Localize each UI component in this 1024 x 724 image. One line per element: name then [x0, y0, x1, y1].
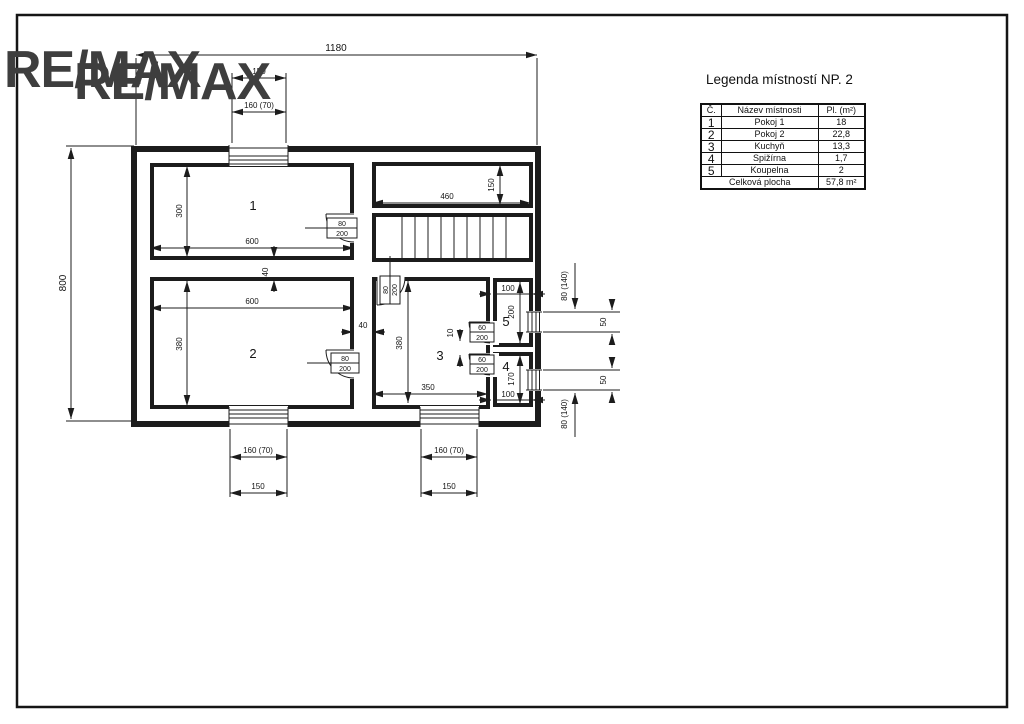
- legend-room-name: Kuchyň: [721, 141, 818, 153]
- dim-side-window-upper-height: 50: [599, 317, 608, 326]
- room5-number: 5: [502, 314, 509, 329]
- dim-overall-height: 800: [58, 274, 69, 291]
- dim-overall-width: 1180: [325, 43, 347, 54]
- dim-room4-width: 100: [501, 390, 515, 399]
- dim-side-window-upper: 80 (140): [560, 271, 569, 301]
- legend-room-name: Pokoj 2: [721, 129, 818, 141]
- dim-kitchen-height: 380: [395, 336, 404, 350]
- legend-room-no: 5: [701, 165, 721, 177]
- door-height-label: 200: [339, 366, 351, 373]
- dim-room1-height: 300: [175, 204, 184, 218]
- door-height-label: 200: [476, 335, 488, 342]
- legend-col-name: Název místnosti: [721, 104, 818, 117]
- window-bottom-left: [229, 406, 288, 429]
- window-right-upper: [525, 311, 543, 333]
- room4-number: 4: [502, 359, 509, 374]
- window-bottom-right: [420, 406, 479, 429]
- legend-row: 4 Spižírna 1,7: [701, 153, 865, 165]
- legend-room-name: Koupelna: [721, 165, 818, 177]
- door-width-label: 80: [338, 221, 346, 228]
- dim-kitchen-width: 350: [421, 383, 435, 392]
- legend-room-no: 3: [701, 141, 721, 153]
- legend-room-no: 4: [701, 153, 721, 165]
- door-width-label: 60: [478, 357, 486, 364]
- room-legend: Legenda místností NP. 2 Č. Název místnos…: [700, 72, 876, 190]
- legend-room-no: 1: [701, 117, 721, 129]
- dim-room5-width: 100: [501, 284, 515, 293]
- legend-row: 1 Pokoj 1 18: [701, 117, 865, 129]
- dim-stair-width: 460: [440, 192, 454, 201]
- legend-row: 2 Pokoj 2 22,8: [701, 129, 865, 141]
- legend-room-no: 2: [701, 129, 721, 141]
- window-right-lower: [525, 369, 543, 391]
- dim-wall-thickness-horizontal: 40: [359, 321, 368, 330]
- room1-number: 1: [249, 198, 256, 213]
- door-width-label: 60: [478, 325, 486, 332]
- floorplan-page: 80 200 80 200 80 200 60 200 60 200 1180 …: [0, 0, 1024, 724]
- legend-room-area: 1,7: [818, 153, 865, 165]
- dim-stair-height: 150: [487, 178, 496, 192]
- legend-total-label: Celková plocha: [701, 177, 818, 190]
- door-height-label: 200: [476, 367, 488, 374]
- legend-room-area: 18: [818, 117, 865, 129]
- dim-room1-width: 600: [245, 237, 259, 246]
- dim-bottom-window-right-clear: 150: [442, 482, 456, 491]
- legend-room-area: 2: [818, 165, 865, 177]
- legend-header-row: Č. Název místnosti Pl. (m²): [701, 104, 865, 117]
- legend-col-number: Č.: [701, 104, 721, 117]
- legend-title: Legenda místností NP. 2: [706, 72, 876, 87]
- legend-room-area: 22,8: [818, 129, 865, 141]
- legend-room-name: Pokoj 1: [721, 117, 818, 129]
- door-width-label: 80: [341, 356, 349, 363]
- legend-room-name: Spižírna: [721, 153, 818, 165]
- dim-door-gap: 10: [446, 328, 455, 337]
- dim-side-window-lower-height: 50: [599, 375, 608, 384]
- legend-total-value: 57,8 m²: [818, 177, 865, 190]
- legend-total-row: Celková plocha 57,8 m²: [701, 177, 865, 190]
- dim-bottom-window-left-clear: 150: [251, 482, 265, 491]
- window-top: [229, 143, 288, 166]
- door-width-label: 80: [383, 286, 390, 294]
- dim-room2-height: 380: [175, 337, 184, 351]
- legend-table: Č. Název místnosti Pl. (m²) 1 Pokoj 1 18…: [700, 103, 866, 190]
- dim-top-window-clear: 150: [252, 67, 266, 76]
- legend-row: 3 Kuchyň 13,3: [701, 141, 865, 153]
- dim-top-window: 160 (70): [244, 101, 274, 110]
- legend-row: 5 Koupelna 2: [701, 165, 865, 177]
- dim-wall-thickness-vertical: 40: [261, 267, 270, 276]
- door-height-label: 200: [336, 231, 348, 238]
- dim-bottom-window-left: 160 (70): [243, 446, 273, 455]
- legend-col-area: Pl. (m²): [818, 104, 865, 117]
- room3-number: 3: [436, 348, 443, 363]
- room2-number: 2: [249, 346, 256, 361]
- dim-bottom-window-right: 160 (70): [434, 446, 464, 455]
- dim-room2-width: 600: [245, 297, 259, 306]
- dim-side-window-lower: 80 (140): [560, 399, 569, 429]
- legend-room-area: 13,3: [818, 141, 865, 153]
- door-height-label: 200: [392, 284, 399, 296]
